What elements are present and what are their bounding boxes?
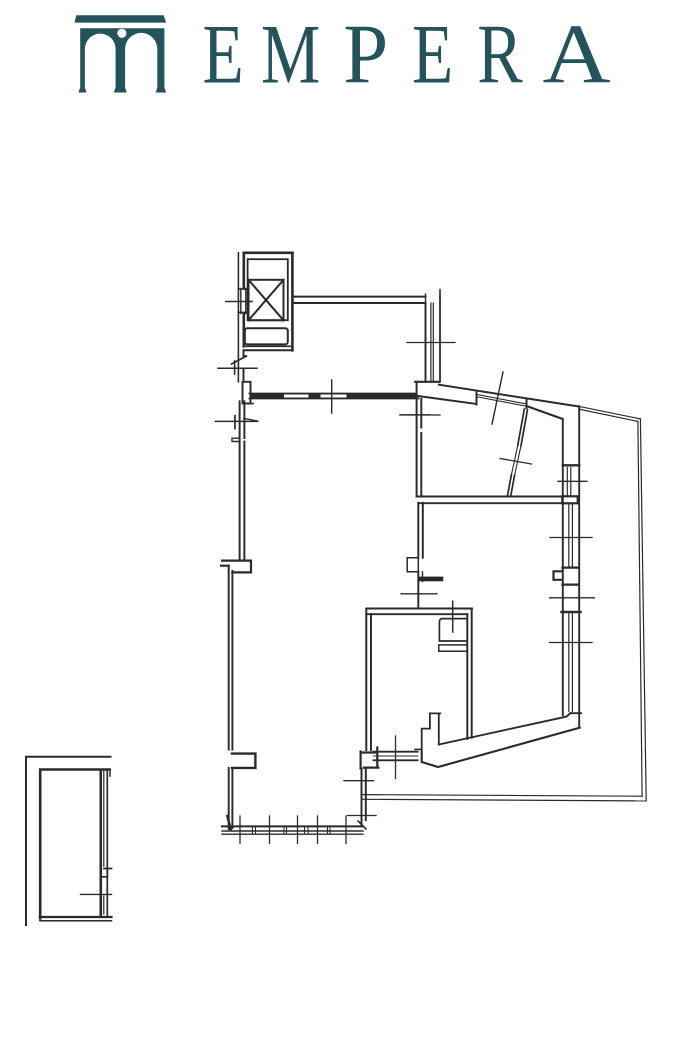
svg-text:E: E bbox=[203, 7, 244, 101]
svg-text:A: A bbox=[543, 8, 611, 102]
svg-text:E: E bbox=[412, 7, 453, 101]
svg-text:M: M bbox=[261, 7, 320, 102]
svg-text:P: P bbox=[343, 7, 388, 101]
svg-text:R: R bbox=[477, 6, 523, 101]
